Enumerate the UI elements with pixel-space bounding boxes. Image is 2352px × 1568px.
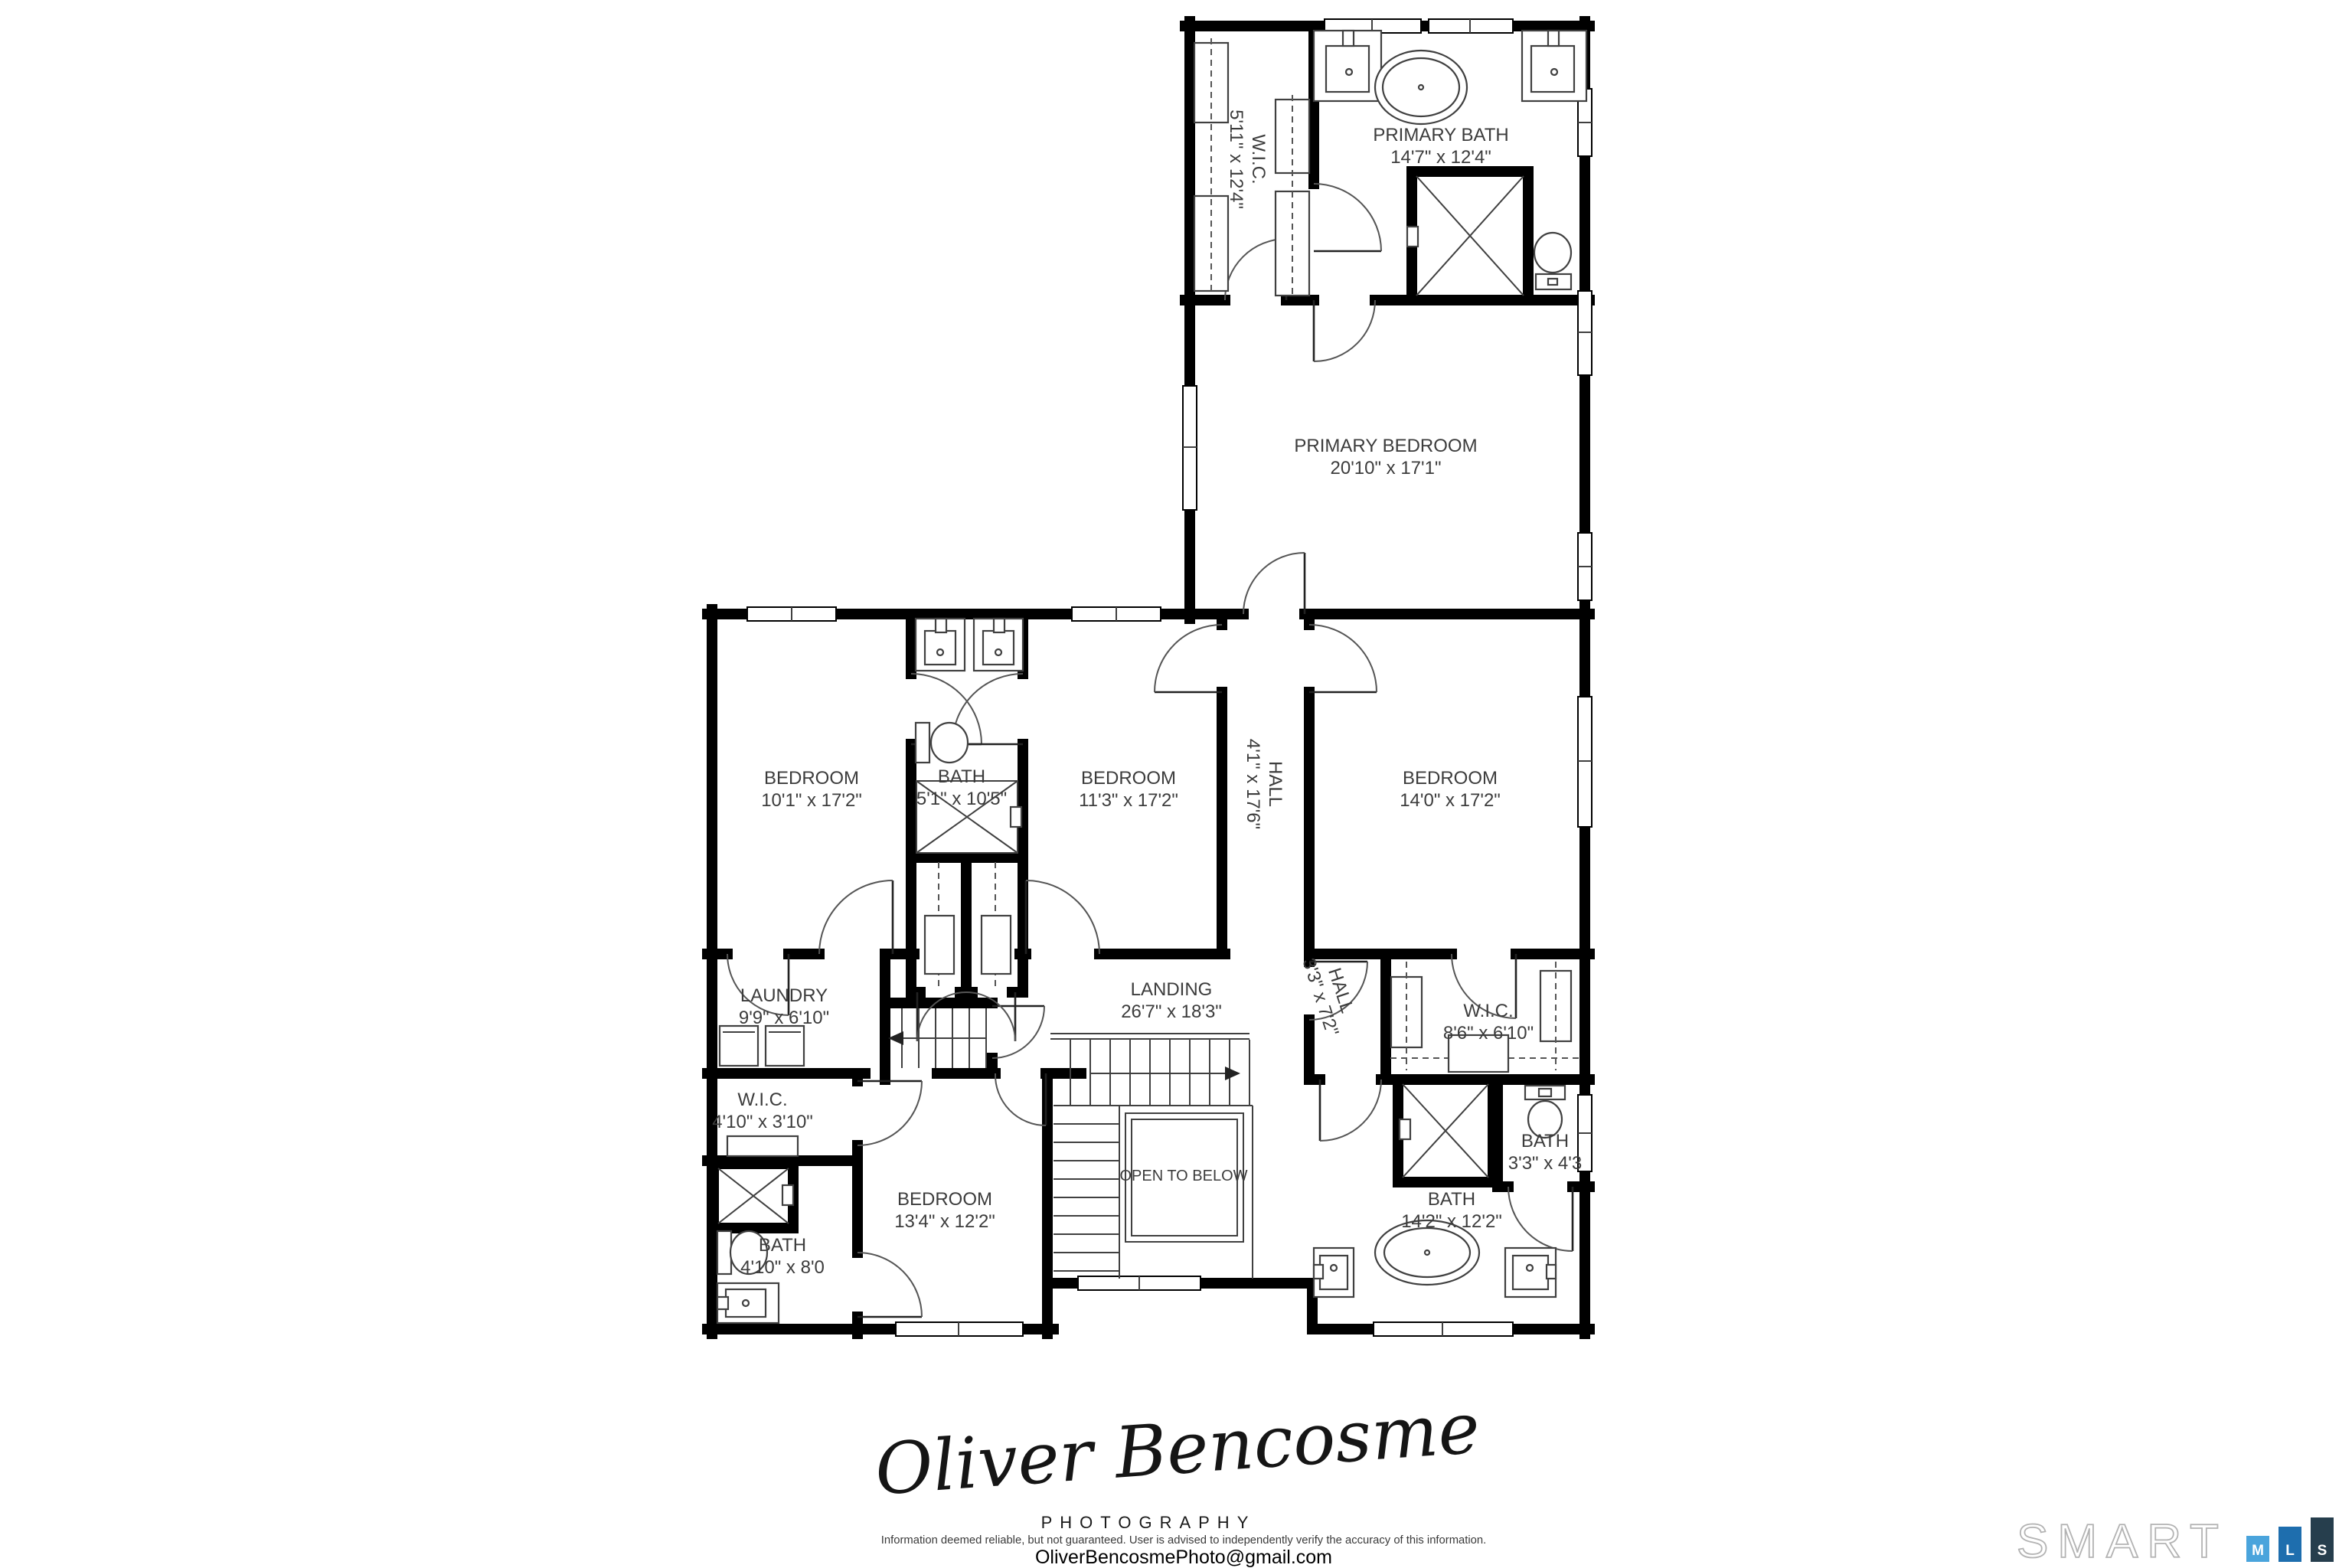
window [1183,386,1197,510]
room-label-primary-bath: PRIMARY BATH [1373,125,1508,145]
window [1072,607,1161,621]
door [995,1073,1046,1125]
dryer-icon [766,1026,804,1066]
room-dims: 3'3" x 4'3 [1508,1153,1582,1174]
room-label-bedroom-bottom: BEDROOM [897,1189,992,1210]
room-label-bath-bottom: BATH [1428,1189,1475,1210]
door [1320,1080,1381,1141]
room-dims: 5'11" x 12'4" [1226,109,1246,209]
mls-letter-m: M [2252,1543,2264,1559]
sink-vanity-icon [717,1283,779,1323]
window [1578,291,1592,375]
room-dims: 13'4" x 12'2" [894,1211,995,1232]
room-name: HALL [1265,761,1285,807]
smart-mls-logo: SMART M L S [2017,1515,2334,1568]
sink-vanity-icon [1314,31,1381,101]
room-dims: 4'1" x 17'6" [1243,739,1263,829]
contact-email[interactable]: OliverBencosmePhoto@gmail.com [1035,1547,1332,1568]
door [819,880,893,954]
room-dims: 4'10" x 8'0 [740,1257,825,1278]
window [1578,533,1592,600]
door [992,1006,1044,1058]
door [857,1253,922,1317]
room-label-wic-right: W.I.C. [1463,1001,1513,1021]
room-dims: 14'0" x 17'2" [1400,790,1501,811]
toilet-icon [1534,233,1571,289]
washer-icon [720,1026,758,1066]
window [1578,697,1592,827]
window [896,1322,1023,1336]
door [1026,880,1099,954]
room-name: W.I.C. [1248,134,1269,184]
toilet-icon [916,723,968,763]
door [1155,625,1222,692]
room-label-wic-top: W.I.C. 5'11" x 12'4" [1226,109,1269,209]
room-label-open-to-below: OPEN TO BELOW [1119,1168,1247,1184]
door [727,954,789,1015]
room-dims: 14'7" x 12'4" [1390,147,1491,168]
room-label-hall: HALL 4'1" x 17'6" [1243,739,1285,829]
door [1508,1187,1573,1251]
bathtub-icon [1375,51,1467,124]
mls-letter-s: S [2318,1543,2327,1559]
photographer-signature-logo: Oliver Bencosme [873,1387,1483,1511]
room-dims: 9'9" x 6'10" [739,1008,829,1028]
sink-vanity-icon [974,619,1023,671]
room-label-bedroom-left: BEDROOM [764,768,859,789]
door [1309,625,1377,692]
sink-vanity-icon [916,619,965,671]
branding: Oliver Bencosme PHOTOGRAPHY Information … [873,1387,1487,1568]
room-dims: 20'10" x 17'1" [1331,458,1442,479]
walls [707,21,1589,1334]
disclaimer-text: Information deemed reliable, but not gua… [881,1534,1486,1547]
room-label-bedroom-right: BEDROOM [1403,768,1498,789]
room-label-bath-small: BATH [1521,1131,1569,1151]
window [1078,1276,1200,1290]
toilet-icon [1525,1086,1565,1138]
sink-vanity-icon [1522,31,1586,101]
room-label-bath-center: BATH [938,766,985,787]
room-label-bath-left: BATH [759,1235,806,1256]
door [1314,300,1375,361]
window [747,607,836,621]
sink-vanity-icon [1505,1248,1556,1297]
sink-vanity-icon [1314,1248,1354,1297]
door [1314,184,1381,251]
room-dims: 5'1" x 10'5" [916,789,1007,809]
room-dims: 4'10" x 3'10" [712,1112,813,1132]
room-dims: 14'2" x 12'2" [1401,1211,1502,1232]
window [1429,19,1513,33]
room-label-wic-small: W.I.C. [737,1089,787,1110]
photography-label: PHOTOGRAPHY [1041,1513,1256,1532]
floorplan-page: W.I.C. 5'11" x 12'4" PRIMARY BATH 14'7" … [0,0,2352,1568]
room-label-landing: LANDING [1131,979,1213,1000]
room-dims: 11'3" x 17'2" [1079,790,1178,811]
room-dims: 26'7" x 18'3" [1121,1001,1222,1022]
stair-arrow-right [1225,1067,1240,1080]
door [1243,553,1305,614]
window [1374,1322,1513,1336]
mls-letter-l: L [2285,1543,2295,1559]
door [857,1081,922,1145]
room-label-bedroom-mid: BEDROOM [1081,768,1176,789]
smart-wordmark: SMART [2017,1515,2228,1568]
room-label-primary-bedroom: PRIMARY BEDROOM [1294,436,1477,456]
room-dims: 8'6" x 6'10" [1443,1023,1534,1044]
stairs [888,1008,1253,1279]
closet-shelving [727,1136,798,1156]
room-dims: 10'1" x 17'2" [761,790,862,811]
floorplan-canvas: W.I.C. 5'11" x 12'4" PRIMARY BATH 14'7" … [0,0,2352,1568]
room-label-laundry: LAUNDRY [740,985,828,1006]
